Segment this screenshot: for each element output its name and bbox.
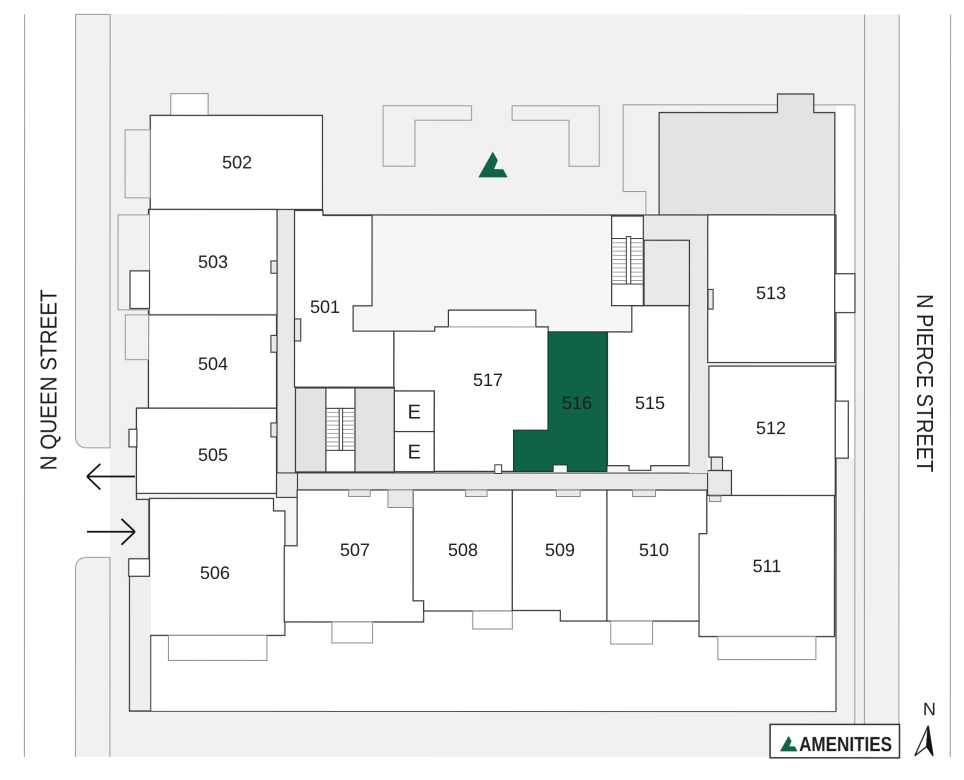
svg-text:516: 516	[562, 393, 592, 413]
svg-text:515: 515	[635, 393, 665, 413]
svg-text:N QUEEN STREET: N QUEEN STREET	[35, 289, 61, 470]
svg-text:504: 504	[198, 354, 228, 374]
svg-text:502: 502	[222, 152, 252, 172]
svg-text:503: 503	[198, 252, 228, 272]
svg-text:E: E	[408, 441, 421, 463]
svg-text:507: 507	[340, 540, 370, 560]
svg-text:509: 509	[545, 540, 575, 560]
svg-text:511: 511	[753, 556, 782, 576]
svg-text:501: 501	[310, 297, 340, 317]
svg-text:AMENITIES: AMENITIES	[799, 733, 892, 756]
svg-text:N: N	[923, 699, 936, 719]
svg-text:E: E	[408, 401, 421, 423]
svg-text:N PIERCE STREET: N PIERCE STREET	[912, 294, 938, 472]
svg-text:513: 513	[756, 283, 786, 303]
svg-text:510: 510	[639, 540, 669, 560]
svg-text:508: 508	[448, 540, 478, 560]
svg-text:512: 512	[756, 418, 786, 438]
svg-text:506: 506	[200, 563, 230, 583]
svg-text:517: 517	[473, 370, 503, 390]
svg-text:505: 505	[198, 445, 228, 465]
